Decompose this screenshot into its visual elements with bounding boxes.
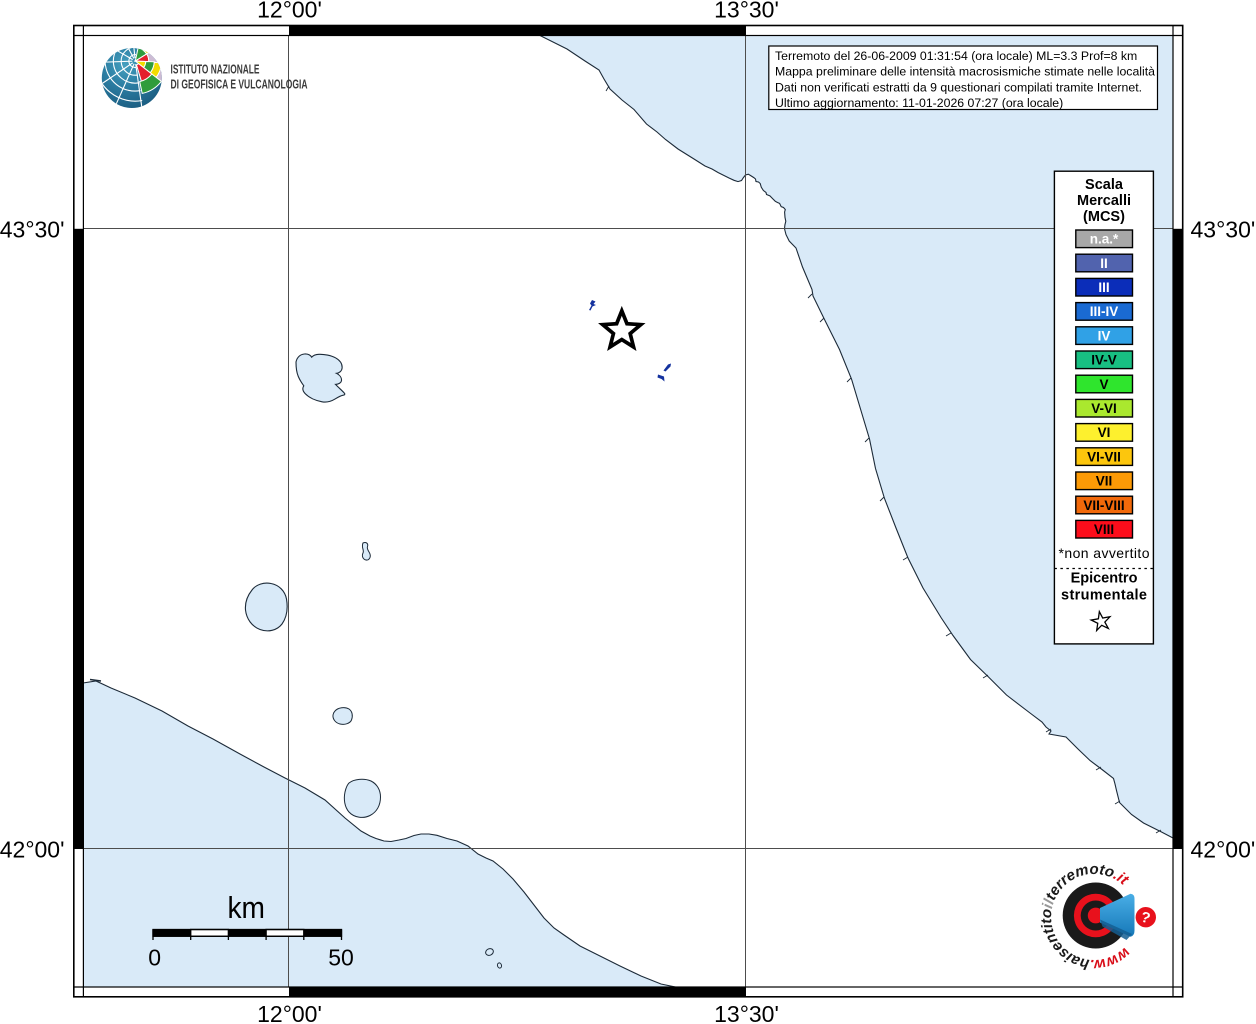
svg-text:III: III bbox=[1098, 280, 1109, 295]
svg-text:43°30': 43°30' bbox=[0, 217, 65, 243]
svg-text:Dati non verificati estratti d: Dati non verificati estratti da 9 questi… bbox=[775, 80, 1142, 94]
svg-text:n.a.*: n.a.* bbox=[1090, 232, 1119, 247]
svg-text:VII-VIII: VII-VIII bbox=[1083, 498, 1124, 513]
svg-text:*non avvertito: *non avvertito bbox=[1059, 545, 1150, 561]
svg-text:ISTITUTO NAZIONALE: ISTITUTO NAZIONALE bbox=[171, 62, 260, 77]
svg-text:Epicentro: Epicentro bbox=[1071, 571, 1138, 587]
svg-text:Terremoto del 26-06-2009 01:31: Terremoto del 26-06-2009 01:31:54 (ora l… bbox=[775, 49, 1137, 63]
svg-text:(MCS): (MCS) bbox=[1083, 209, 1125, 225]
svg-text:13°30': 13°30' bbox=[714, 0, 779, 23]
svg-text:12°00': 12°00' bbox=[257, 0, 322, 23]
svg-text:12°00': 12°00' bbox=[257, 1001, 322, 1024]
svg-text:42°00': 42°00' bbox=[1191, 837, 1256, 863]
svg-text:IV: IV bbox=[1098, 328, 1111, 343]
svg-text:Scala: Scala bbox=[1085, 177, 1124, 193]
svg-text:VI-VII: VI-VII bbox=[1087, 449, 1121, 464]
svg-text:V: V bbox=[1099, 377, 1108, 392]
svg-text:Ultimo aggiornamento: 11-01-20: Ultimo aggiornamento: 11-01-2026 07:27 (… bbox=[775, 96, 1063, 110]
svg-text:km: km bbox=[227, 890, 265, 925]
svg-text:Mappa preliminare delle intens: Mappa preliminare delle intensità macros… bbox=[775, 65, 1155, 79]
svg-text:DI GEOFISICA E VULCANOLOGIA: DI GEOFISICA E VULCANOLOGIA bbox=[171, 77, 308, 92]
svg-text:III-IV: III-IV bbox=[1090, 304, 1119, 319]
svg-text:13°30': 13°30' bbox=[714, 1001, 779, 1024]
svg-text:VII: VII bbox=[1096, 474, 1113, 489]
svg-text:strumentale: strumentale bbox=[1061, 588, 1147, 604]
svg-text:Mercalli: Mercalli bbox=[1077, 193, 1131, 209]
svg-text:43°30': 43°30' bbox=[1191, 217, 1256, 243]
svg-text:V-VI: V-VI bbox=[1091, 401, 1117, 416]
svg-text:42°00': 42°00' bbox=[0, 837, 65, 863]
svg-text:50: 50 bbox=[328, 944, 354, 970]
svg-text:VI: VI bbox=[1098, 425, 1111, 440]
svg-text:0: 0 bbox=[148, 944, 161, 970]
svg-text:VIII: VIII bbox=[1094, 522, 1114, 537]
svg-text:IV-V: IV-V bbox=[1091, 353, 1117, 368]
svg-text:II: II bbox=[1100, 256, 1108, 271]
